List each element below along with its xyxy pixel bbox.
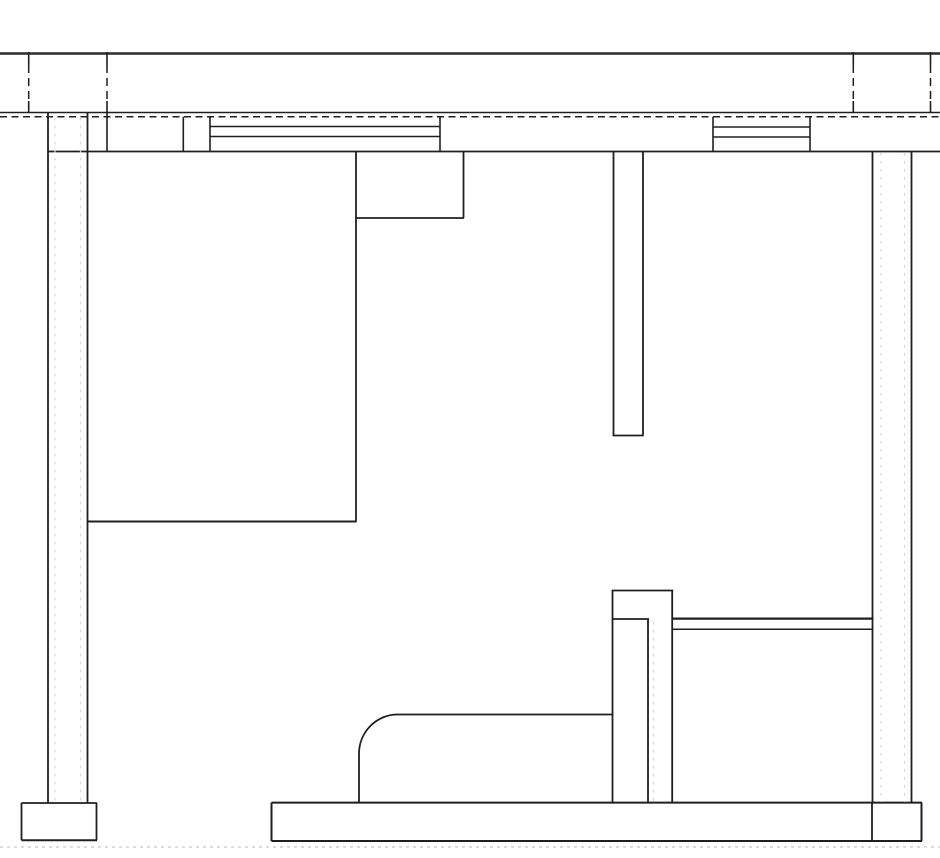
bench-corner-arc [359,714,398,753]
drawing-canvas [0,0,940,858]
architectural-section-drawing [0,0,940,858]
